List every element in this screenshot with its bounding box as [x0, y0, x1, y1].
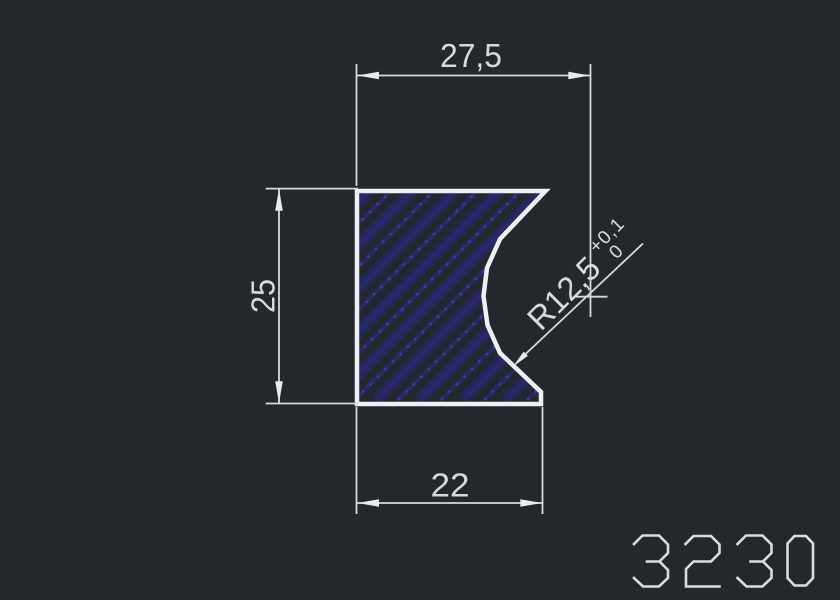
- svg-text:27,5: 27,5: [440, 37, 502, 74]
- svg-text:22: 22: [431, 467, 470, 504]
- svg-text:25: 25: [245, 279, 282, 313]
